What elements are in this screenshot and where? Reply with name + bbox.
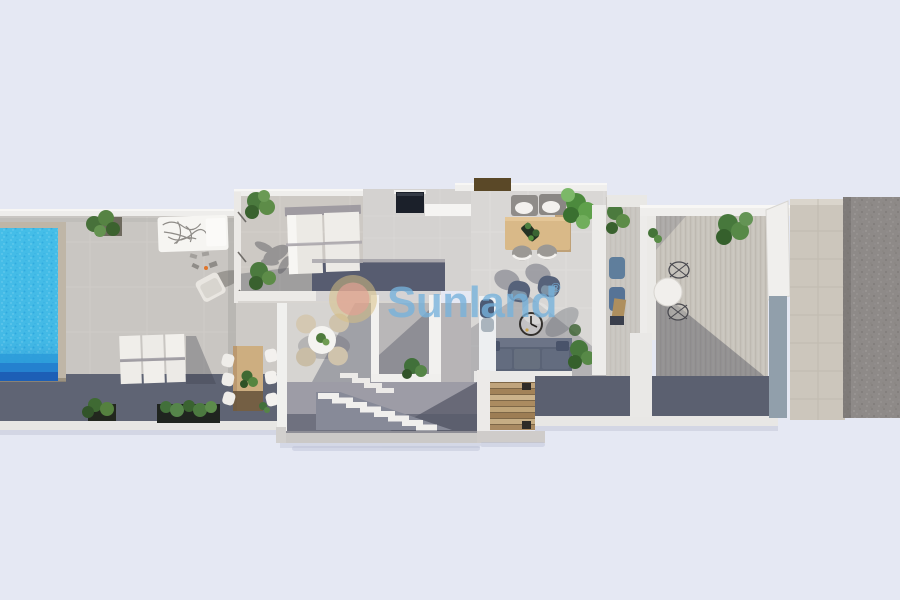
svg-text:Sunland: Sunland — [387, 278, 557, 327]
svg-text:®: ® — [551, 280, 561, 295]
